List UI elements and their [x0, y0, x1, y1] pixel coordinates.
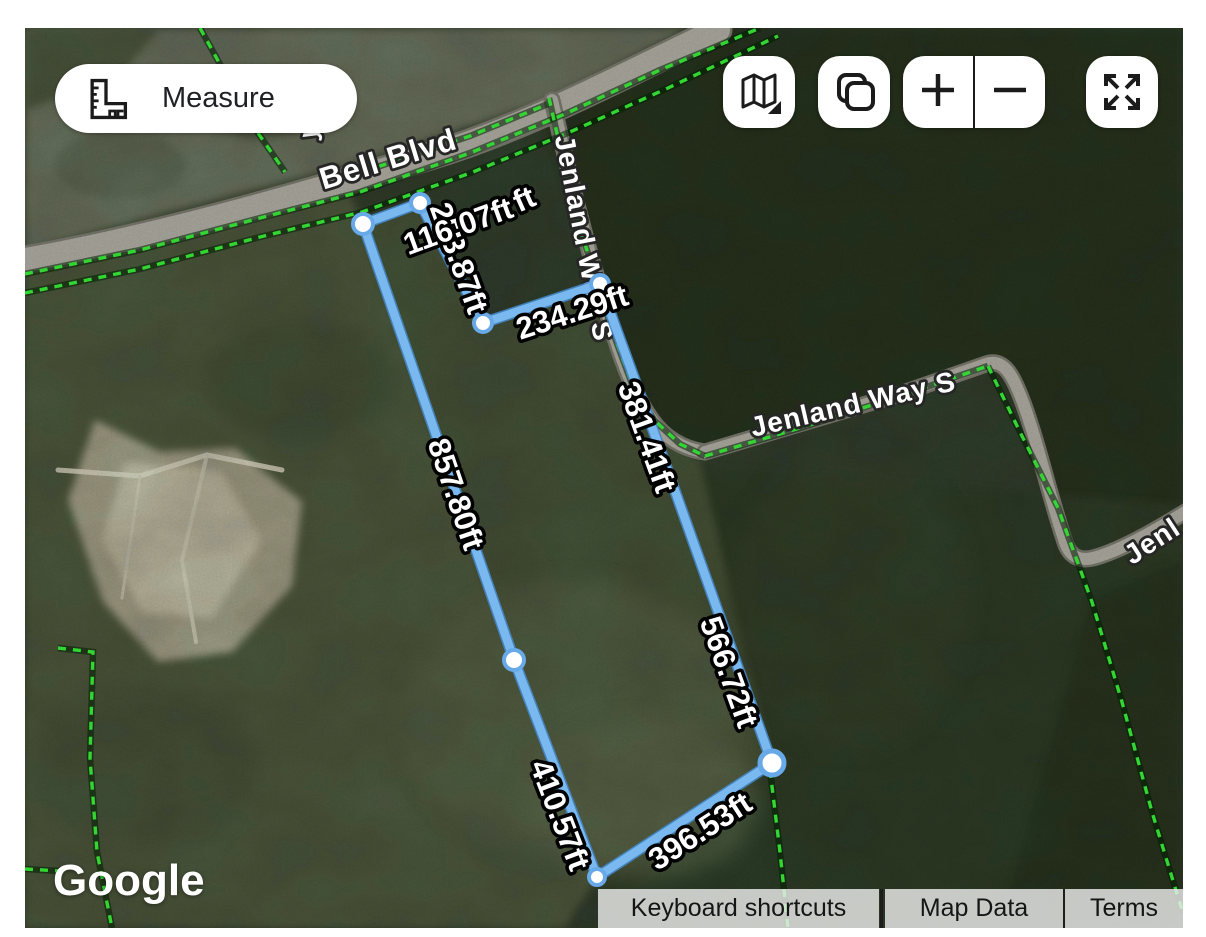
map-viewport[interactable]: Bell BlvdJenland Way SJenland Way SJenly…: [25, 28, 1183, 928]
measure-vertex[interactable]: [353, 214, 373, 234]
zoom-control: [903, 56, 1045, 128]
attribution-divider: [880, 889, 883, 928]
measure-vertex[interactable]: [760, 751, 784, 775]
copy-button[interactable]: [818, 56, 890, 128]
fullscreen-icon: [1100, 70, 1144, 114]
ruler-icon: [82, 75, 130, 123]
measure-button[interactable]: Measure: [55, 64, 357, 133]
google-logo[interactable]: Google: [53, 856, 205, 906]
measure-button-label: Measure: [162, 82, 275, 115]
map-type-button[interactable]: [723, 56, 795, 128]
measure-vertex[interactable]: [504, 650, 524, 670]
keyboard-shortcuts-button[interactable]: Keyboard shortcuts: [598, 889, 879, 928]
zoom-out-button[interactable]: [975, 56, 1045, 128]
terms-link[interactable]: Terms: [1065, 889, 1183, 928]
map-data-link[interactable]: Map Data: [885, 889, 1063, 928]
measure-vertex[interactable]: [474, 314, 492, 332]
map-icon: [736, 69, 782, 115]
zoom-in-button[interactable]: [903, 56, 973, 128]
minus-icon: [990, 70, 1030, 115]
terrain-noise-fine: [25, 28, 1183, 928]
plus-icon: [918, 70, 958, 115]
satellite-map[interactable]: Bell BlvdJenland Way SJenland Way SJenly…: [25, 28, 1183, 928]
measure-vertex[interactable]: [589, 869, 605, 885]
copy-icon: [831, 69, 877, 115]
fullscreen-button[interactable]: [1086, 56, 1158, 128]
